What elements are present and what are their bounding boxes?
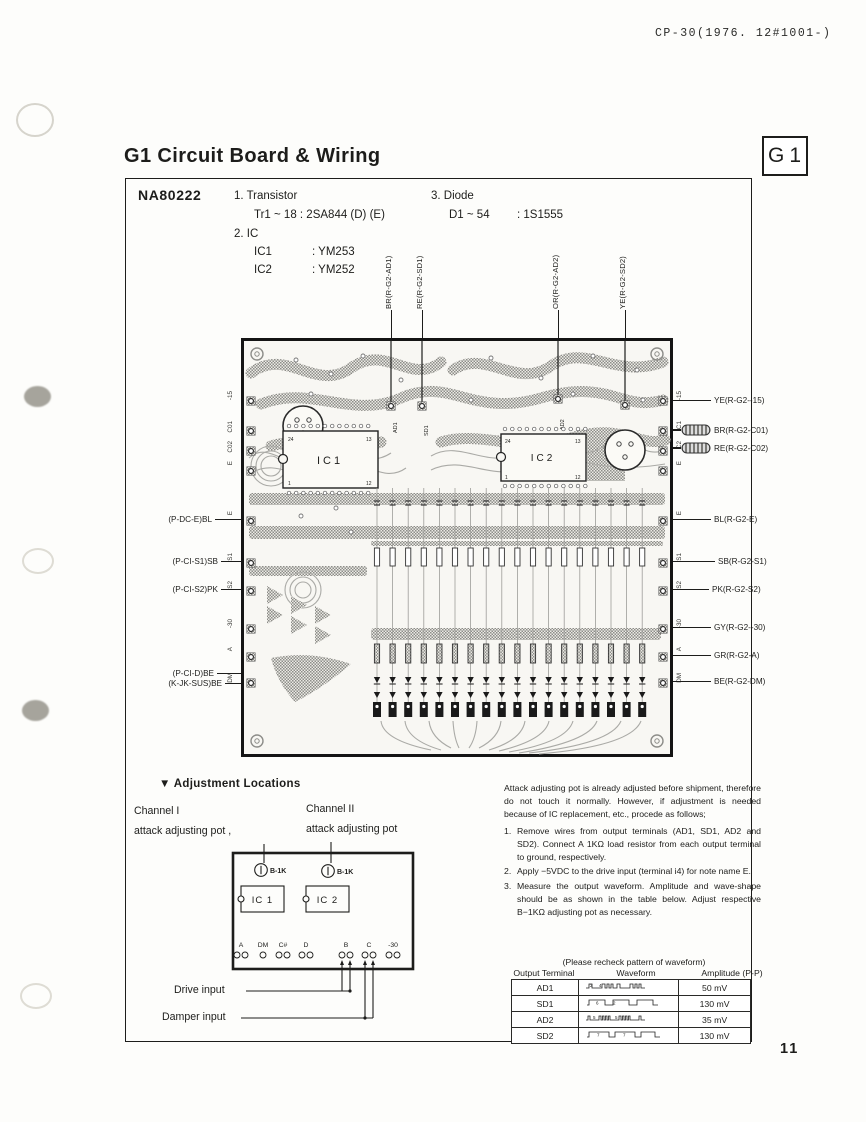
wire-label-re-c02: RE(R-G2-C02) [673, 442, 768, 454]
table-row: SD1 6 2 130 mV [512, 996, 751, 1012]
parts-ic2-name: IC2 [254, 264, 272, 276]
wire-label-be-dm: BE(R-G2-DM) [673, 677, 765, 686]
instruction-step: 1. Remove wires from output terminals (A… [504, 825, 761, 865]
wire-label-be-2: (K-JK-SUS)BE [134, 679, 241, 688]
table-row: AD2 5 5 35 mV [512, 1012, 751, 1028]
parts-item-diode: 3. Diode [431, 190, 474, 202]
wire-label-or-ad2: OR(R-G2-AD2) [551, 237, 560, 309]
adj-ic2-label: IC 2 [317, 895, 338, 906]
wire-lead [558, 310, 559, 340]
wire-label-sb-s1: SB(R-G2-S1) [673, 557, 767, 566]
connector-icon [681, 442, 711, 454]
punch-hole [22, 548, 54, 574]
svg-text:B: B [344, 942, 349, 949]
wire-label-pk-s2: PK(R-G2-S2) [673, 585, 761, 594]
wire-label-br-c01: BR(R-G2-C01) [673, 424, 768, 436]
svg-text:D: D [304, 942, 309, 949]
ic1-package: IC1 24 13 1 12 [279, 424, 379, 495]
board-code: NA80222 [138, 187, 201, 203]
wire-lead [391, 310, 392, 340]
svg-text:A: A [239, 942, 244, 949]
manual-page: CP-30(1976. 12#1001-) G1 Circuit Board &… [0, 0, 866, 1122]
svg-text:24: 24 [288, 437, 294, 443]
triangle-marker-icon: ▼ [159, 778, 171, 790]
wire-label-ye-sd2: YE(R-G2-SD2) [618, 237, 627, 309]
punch-hole [22, 700, 49, 721]
document-code: CP-30(1976. 12#1001-) [655, 27, 831, 40]
waveform-sd1: 6 2 [584, 996, 674, 1009]
svg-text:1: 1 [505, 475, 508, 481]
svg-text:7: 7 [597, 1033, 600, 1038]
svg-text:DM: DM [258, 942, 269, 949]
svg-text:-30: -30 [388, 942, 398, 949]
punch-hole [24, 386, 51, 407]
edge-code: E [227, 461, 234, 465]
parts-ic1-name: IC1 [254, 246, 272, 258]
page-number: 11 [780, 1041, 799, 1057]
svg-text:24: 24 [505, 439, 511, 445]
svg-text:4: 4 [599, 983, 602, 988]
waveform-cell: 6 2 [579, 996, 679, 1012]
board-mark-ad1: AD1 [393, 422, 399, 433]
svg-text:12: 12 [366, 481, 372, 487]
wire-label-bl: (P-DC-E)BL [134, 515, 241, 524]
svg-text:2: 2 [590, 983, 593, 988]
wire-label-gr-a: GR(R-G2-A) [673, 651, 759, 660]
svg-text:5: 5 [593, 1015, 596, 1020]
parts-item-transistor: 1. Transistor [234, 190, 297, 202]
parts-transistor-detail: Tr1 ~ 18 : 2SA844 (D) (E) [254, 209, 385, 221]
svg-text:13: 13 [575, 439, 581, 445]
wire-lead [422, 310, 423, 340]
instructions-intro: Attack adjusting pot is already adjusted… [504, 782, 761, 822]
drive-input-label: Drive input [174, 984, 225, 996]
amplitude-cell: 130 mV [679, 996, 751, 1012]
svg-text:12: 12 [575, 475, 581, 481]
amplitude-cell: 50 mV [679, 980, 751, 996]
instruction-step: 3. Measure the output waveform. Amplitud… [504, 880, 761, 920]
edge-code: C02 [227, 441, 234, 453]
svg-text:1: 1 [288, 481, 291, 487]
wire-label-sb: (P-CI-S1)SB [134, 557, 241, 566]
wire-lead [625, 310, 626, 340]
amplitude-cell: 35 mV [679, 1012, 751, 1028]
parts-diode-range: D1 ~ 54 [449, 209, 490, 221]
parts-item-ic: 2. IC [234, 228, 258, 240]
section-tag-box: G1 [762, 136, 808, 176]
edge-code: -15 [227, 391, 234, 400]
board-mark-sd1: SD1 [424, 425, 430, 436]
parts-ic1-value: : YM253 [312, 246, 355, 258]
table-row: AD1 2 4 50 mV [512, 980, 751, 996]
waveform-ad2: 5 5 [584, 1012, 674, 1025]
waveform-cell: 7 7 [579, 1028, 679, 1044]
page-title: G1 Circuit Board & Wiring [124, 145, 381, 168]
wire-label-ye-15: YE(R-G2--15) [673, 396, 765, 405]
damper-input-label: Damper input [162, 1011, 226, 1023]
ic2-package: IC2 24 13 1 12 [497, 427, 588, 488]
punch-hole [20, 983, 52, 1009]
instruction-step: 2. Apply −5VDC to the drive input (termi… [504, 865, 761, 878]
svg-text:7: 7 [623, 1033, 626, 1038]
svg-text:2: 2 [613, 1001, 616, 1006]
adjustment-instructions: Attack adjusting pot is already adjusted… [504, 782, 761, 919]
waveform-sd2: 7 7 [584, 1028, 674, 1041]
connector-icon [681, 424, 711, 436]
svg-text:C: C [367, 942, 372, 949]
parts-ic2-value: : YM252 [312, 264, 355, 276]
svg-text:6: 6 [596, 1001, 599, 1006]
content-frame: NA80222 1. Transistor Tr1 ~ 18 : 2SA844 … [125, 178, 752, 1042]
wire-label-pk: (P-CI-S2)PK [134, 585, 241, 594]
edge-code: -30 [227, 619, 234, 628]
wire-label-gy-30: GY(R-G2--30) [673, 623, 765, 632]
table-caption: (Please recheck pattern of waveform) [514, 957, 754, 967]
terminal-cell: AD2 [512, 1012, 579, 1028]
edge-code: A [227, 647, 234, 651]
svg-text:IC1: IC1 [317, 455, 343, 467]
edge-code: C01 [227, 421, 234, 433]
table-header: Output Terminal Waveform Amplitude (P-P) [500, 968, 780, 978]
waveform-cell: 2 4 [579, 980, 679, 996]
adj-ic1-label: IC 1 [252, 895, 273, 906]
waveform-cell: 5 5 [579, 1012, 679, 1028]
terminal-cell: AD1 [512, 980, 579, 996]
punch-hole [16, 103, 54, 137]
svg-text:IC2: IC2 [531, 453, 556, 464]
svg-text:13: 13 [366, 437, 372, 443]
waveform-ad1: 2 4 [584, 980, 674, 993]
terminal-cell: SD1 [512, 996, 579, 1012]
wire-label-bl-e: BL(R-G2-E) [673, 515, 757, 524]
wire-label-be-1: (P-CI-D)BE [134, 669, 241, 678]
terminal-cell: SD2 [512, 1028, 579, 1044]
svg-text:C#: C# [279, 942, 288, 949]
pot2-label: B-1K [337, 869, 353, 876]
wire-label-br-ad1: BR(R-G2-AD1) [384, 237, 393, 309]
table-row: SD2 7 7 130 mV [512, 1028, 751, 1044]
pcb-illustration: AD1 SD1 AD2 IC1 24 13 [241, 338, 673, 757]
svg-text:5: 5 [615, 1015, 618, 1020]
wire-label-re-sd1: RE(R-G2-SD1) [415, 237, 424, 309]
amplitude-cell: 130 mV [679, 1028, 751, 1044]
adjustment-heading: ▼ Adjustment Locations [159, 778, 301, 790]
parts-diode-value: : 1S1555 [517, 209, 563, 221]
waveform-table: AD1 2 4 50 mV SD1 6 2 [511, 979, 751, 1044]
edge-code: E [676, 461, 683, 465]
pot1-label: B-1K [270, 868, 286, 875]
